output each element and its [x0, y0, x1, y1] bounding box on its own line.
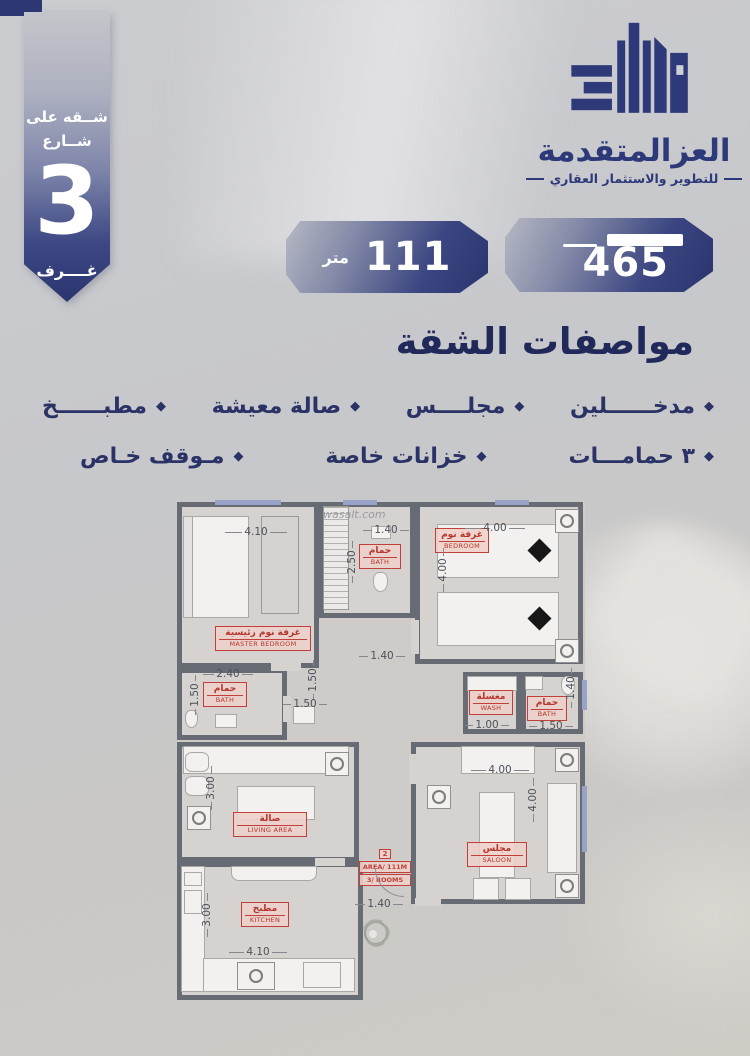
buildings-icon	[559, 18, 709, 130]
dim-corridor-height: 1.50	[307, 658, 319, 702]
dim-entry-width: 1.40	[353, 898, 405, 910]
ribbon-rooms-label: غــــرف	[24, 261, 110, 280]
kitchen-sink-2	[184, 890, 202, 914]
diamond-bullet-icon: ◆	[233, 450, 243, 463]
spec-entrances: ◆مدخــــــلين	[570, 394, 714, 419]
dim-kitchen-height: 3.00	[201, 891, 213, 939]
dim-rightbath-width: 1.50	[527, 720, 575, 732]
spec-kitchen: ◆مطبــــــخ	[42, 394, 166, 419]
spec-label: صالة معيشة	[212, 394, 342, 419]
dim-saloon-width: 4.00	[469, 764, 531, 776]
kitchen-stove	[237, 962, 275, 990]
company-name: العزالمتقدمة	[524, 134, 744, 168]
diamond-bullet-icon: ◆	[477, 450, 487, 463]
dim-living-height: 3.00	[205, 764, 217, 812]
rooms-ribbon-shape: شــقه على شــارع 3 غــــرف	[24, 12, 110, 302]
dim-corridor-width: 1.50	[281, 698, 329, 710]
kitchen-sink-1	[184, 872, 202, 886]
door-gap-saloon	[409, 754, 417, 784]
midbath-sink	[215, 714, 237, 728]
label-ar: حمام	[363, 546, 397, 556]
door-gap-kitchen	[315, 858, 345, 866]
background-pillow-blur	[581, 519, 750, 712]
label-ar: مغسلة	[473, 692, 509, 702]
label-ar: حمام	[207, 684, 243, 694]
area-value: 111	[365, 234, 452, 280]
label-en: BATH	[531, 709, 563, 718]
watermark: wasalt.com	[323, 508, 443, 521]
specs-row-2: ◆٣ حمامـــات ◆خزانات خاصة ◆مـوقف خـاص	[80, 444, 714, 469]
spec-label: خزانات خاصة	[325, 444, 467, 469]
bedroom-nightstand-top	[555, 509, 579, 533]
dim-bedroom-width: 4.00	[463, 522, 527, 534]
area-unit: متر	[323, 248, 349, 267]
kitchen-fridge	[303, 962, 341, 988]
diamond-bullet-icon: ◆	[350, 400, 360, 413]
spec-living-hall: ◆صالة معيشة	[212, 394, 361, 419]
plant-icon	[357, 914, 395, 950]
spec-parking: ◆مـوقف خـاص	[80, 444, 243, 469]
label-en: KITCHEN	[245, 915, 285, 924]
label-en: SALOON	[471, 855, 523, 864]
label-en: LIVING AREA	[237, 825, 303, 834]
company-logo: العزالمتقدمة للتطوير والاستثمار العقاري	[524, 18, 744, 186]
dim-midbath-width: 2.40	[201, 668, 255, 680]
living-lamp-table	[325, 752, 349, 776]
label-mid-bath: حمام BATH	[203, 682, 247, 707]
spec-label: مطبــــــخ	[42, 394, 147, 419]
saloon-chair-1	[473, 878, 499, 900]
label-en: MASTER BEDROOM	[219, 639, 307, 648]
company-tagline: للتطوير والاستثمار العقاري	[524, 171, 744, 186]
spec-tanks: ◆خزانات خاصة	[325, 444, 486, 469]
spec-label: مدخــــــلين	[570, 394, 695, 419]
saloon-lamp-top	[555, 748, 579, 772]
dim-midbath-height: 1.50	[189, 673, 201, 717]
label-ar: مجلس	[471, 844, 523, 854]
saloon-lamp-left	[427, 785, 451, 809]
label-wash: مغسلة WASH	[469, 690, 513, 715]
area-badge: متر 111	[286, 221, 488, 293]
flyer-canvas: شــقه على شــارع 3 غــــرف العزالمتقدمة …	[0, 0, 750, 1056]
window-saloon	[582, 786, 587, 852]
spec-majlis: ◆مجلــــس	[406, 394, 525, 419]
saloon-sofa-right	[547, 783, 577, 873]
rooms-ribbon: شــقه على شــارع 3 غــــرف	[24, 12, 110, 302]
window-right-bath	[582, 680, 587, 710]
rightbath-sink	[525, 676, 543, 690]
window-bedroom	[495, 500, 529, 505]
label-en: BATH	[363, 557, 397, 566]
ribbon-room-count: 3	[24, 150, 110, 254]
dim-wash-width: 1.00	[463, 719, 511, 731]
dim-kitchen-width: 4.10	[227, 946, 289, 958]
spec-label: ٣ حمامـــات	[568, 444, 695, 469]
label-saloon: مجلس SALOON	[467, 842, 527, 867]
diamond-bullet-icon: ◆	[704, 400, 714, 413]
dim-hall-width: 1.40	[357, 650, 407, 662]
topbath-toilet	[373, 572, 388, 592]
price-value: 465	[583, 240, 670, 286]
dim-topbath-width: 1.40	[361, 524, 411, 536]
ribbon-line1: شــقه على	[24, 108, 110, 126]
spec-bathrooms: ◆٣ حمامـــات	[568, 444, 714, 469]
price-badge: 465	[505, 218, 713, 292]
door-gap-bedroom	[411, 620, 419, 654]
specs-row-1: ◆مدخــــــلين ◆مجلــــس ◆صالة معيشة ◆مطب…	[42, 394, 714, 419]
floor-plan: wasalt.com غرفة نوم رئيسية MASTER BEDROO…	[175, 500, 589, 1005]
specs-title: مواصفات الشقة	[396, 320, 694, 363]
spec-label: مـوقف خـاص	[80, 444, 224, 469]
diamond-bullet-icon: ◆	[156, 400, 166, 413]
label-ar: غرفة نوم رئيسية	[219, 628, 307, 638]
kitchen-hood	[231, 866, 317, 881]
saloon-lamp-bottom	[555, 874, 579, 898]
window-top-bath	[343, 500, 377, 505]
dim-saloon-height: 4.00	[527, 776, 539, 824]
label-ar: مطبخ	[245, 904, 285, 914]
label-living-area: صالة LIVING AREA	[233, 812, 307, 837]
wash-counter	[467, 676, 517, 691]
info-number: 2	[379, 849, 392, 859]
dim-rightbath-height: 1.40	[565, 666, 577, 710]
dim-topbath-height: 2.50	[346, 539, 358, 585]
saloon-chair-2	[505, 878, 531, 900]
label-ar: حمام	[531, 698, 563, 708]
label-right-bath: حمام BATH	[527, 696, 567, 721]
label-kitchen: مطبخ KITCHEN	[241, 902, 289, 927]
label-en: WASH	[473, 703, 509, 712]
window-master	[215, 500, 281, 505]
label-en: BATH	[207, 695, 243, 704]
diamond-bullet-icon: ◆	[704, 450, 714, 463]
dim-master-width: 4.10	[223, 526, 289, 538]
label-top-bath: حمام BATH	[359, 544, 401, 569]
bedroom-nightstand-bottom	[555, 639, 579, 663]
diamond-bullet-icon: ◆	[514, 400, 524, 413]
label-ar: صالة	[237, 814, 303, 824]
label-master-bedroom: غرفة نوم رئيسية MASTER BEDROOM	[215, 626, 311, 651]
spec-label: مجلــــس	[406, 394, 506, 419]
door-gap-entry	[415, 898, 441, 906]
door-gap-master	[271, 663, 301, 671]
master-bed-headboard	[183, 516, 193, 618]
dim-bedroom-height: 4.00	[437, 546, 449, 594]
